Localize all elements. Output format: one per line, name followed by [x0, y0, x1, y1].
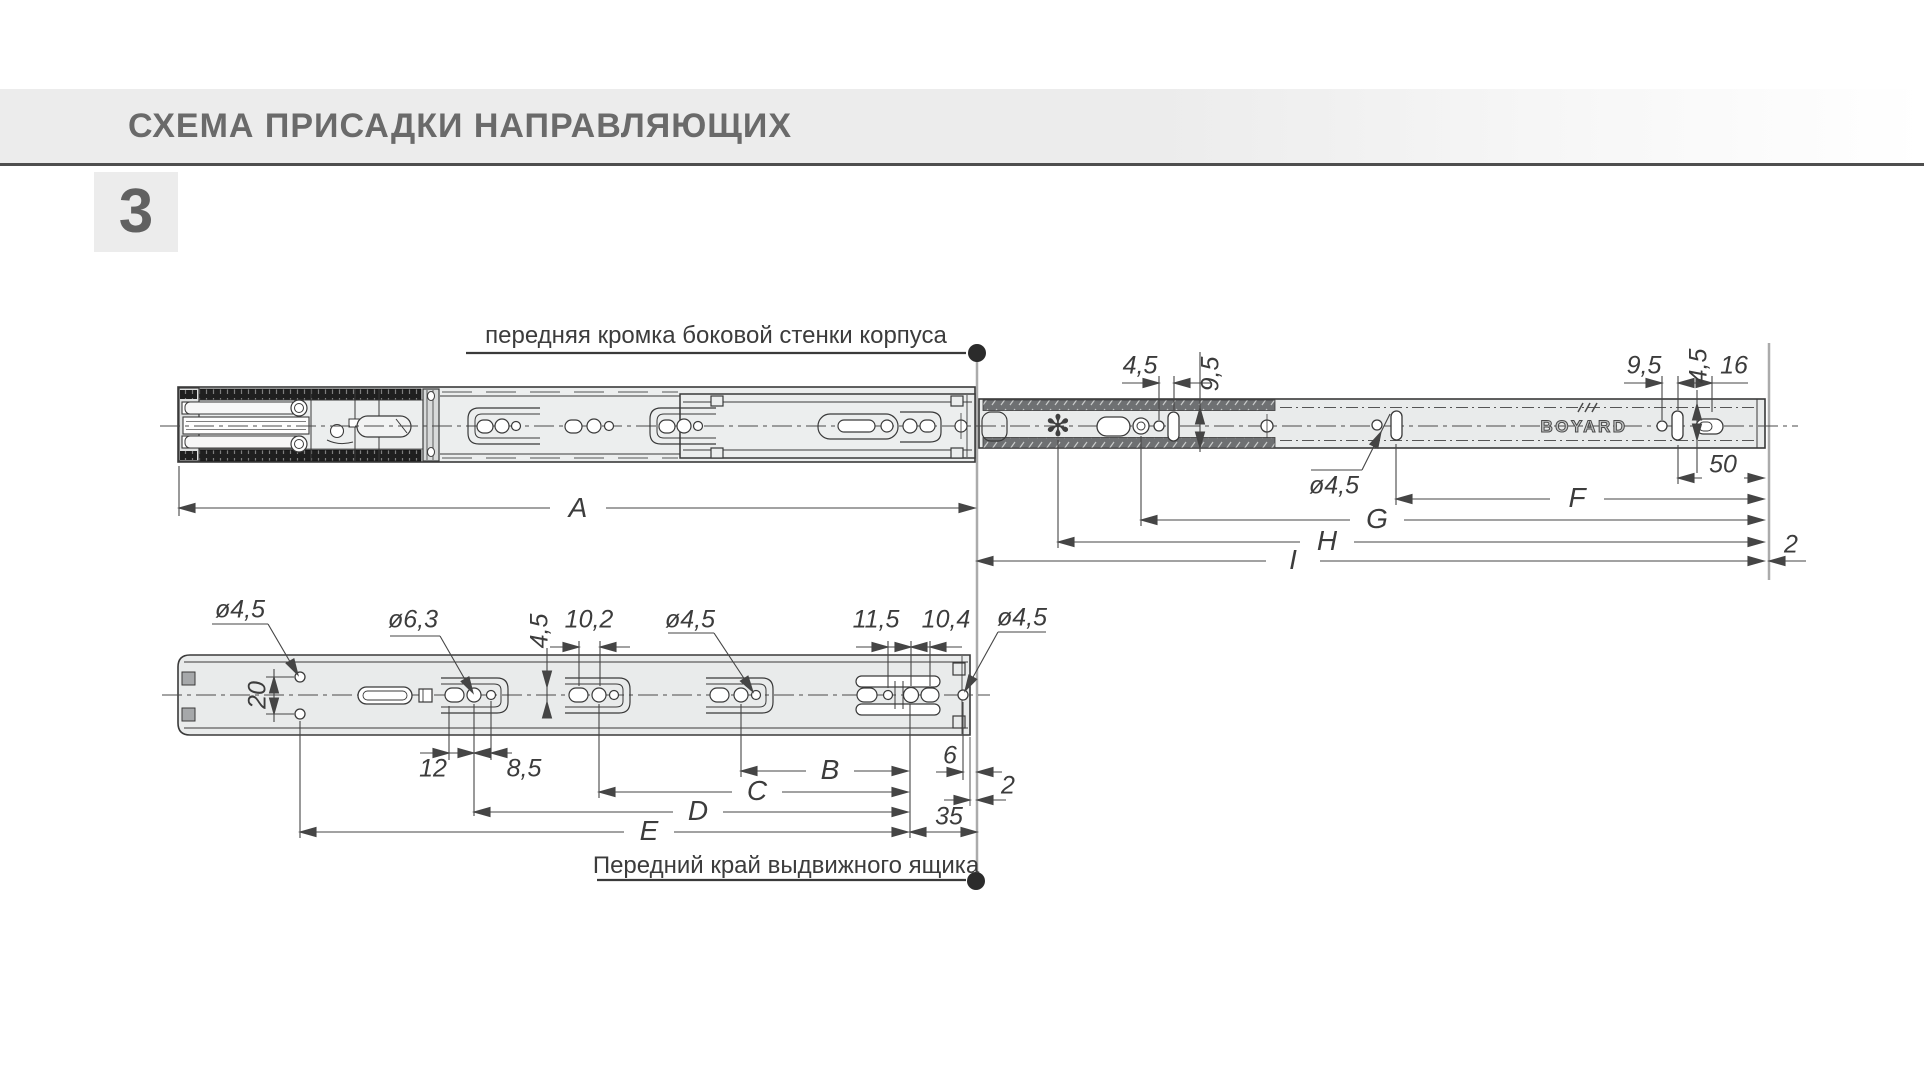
- dim-115-label: 11,5: [853, 608, 900, 633]
- dim-d-label: D: [688, 797, 708, 825]
- dim-dia45-front-label: ø4,5: [215, 598, 265, 623]
- dim-95-left-label: 9,5: [1199, 357, 1224, 392]
- dim-a-label: A: [569, 494, 588, 522]
- dim-dia63-label: ø6,3: [388, 608, 438, 633]
- euro-hook-hole-icon: ✻: [1045, 412, 1070, 442]
- dim-6-label: 6: [943, 744, 957, 769]
- dim-95-right-label: 9,5: [1627, 354, 1662, 379]
- dim-h-label: H: [1317, 527, 1337, 555]
- dim-20-label: 20: [246, 681, 271, 709]
- dim-e-label: E: [640, 817, 659, 845]
- boyard-logo: BOYARD: [1540, 417, 1627, 437]
- dim-102-label: 10,2: [565, 608, 614, 633]
- dim-b-label: B: [821, 756, 840, 784]
- top-reference-note: передняя кромка боковой стенки корпуса: [485, 324, 947, 348]
- dim-50-label: 50: [1709, 453, 1737, 478]
- page: СХЕМА ПРИСАДКИ НАПРАВЛЯЮЩИХ 3: [0, 0, 1924, 1082]
- dim-2-bottom-label: 2: [1001, 774, 1015, 799]
- bottom-rail-drawing: [162, 655, 990, 735]
- dim-45-vertical-label: 4,5: [528, 614, 553, 649]
- dim-12-label: 12: [419, 757, 447, 782]
- dim-2-top-label: 2: [1784, 533, 1798, 558]
- dim-45-right-label: 4,5: [1687, 349, 1712, 384]
- dim-16-label: 16: [1720, 354, 1748, 379]
- dim-c-label: C: [747, 777, 767, 805]
- dim-g-label: G: [1366, 505, 1388, 533]
- dim-35-label: 35: [935, 805, 963, 830]
- dim-dia45-top-label: ø4,5: [1309, 474, 1359, 499]
- dim-104-label: 10,4: [922, 608, 971, 633]
- dim-45-left-label: 4,5: [1123, 354, 1158, 379]
- dim-f-label: F: [1568, 484, 1585, 512]
- dim-dia45-mid-label: ø4,5: [665, 608, 715, 633]
- dim-85-label: 8,5: [507, 757, 542, 782]
- slide-mounting-diagram: [0, 0, 1924, 1082]
- bottom-reference-note: Передний край выдвижного ящика: [593, 854, 979, 878]
- dim-i-label: I: [1289, 546, 1297, 574]
- dim-dia45-end-label: ø4,5: [997, 606, 1047, 631]
